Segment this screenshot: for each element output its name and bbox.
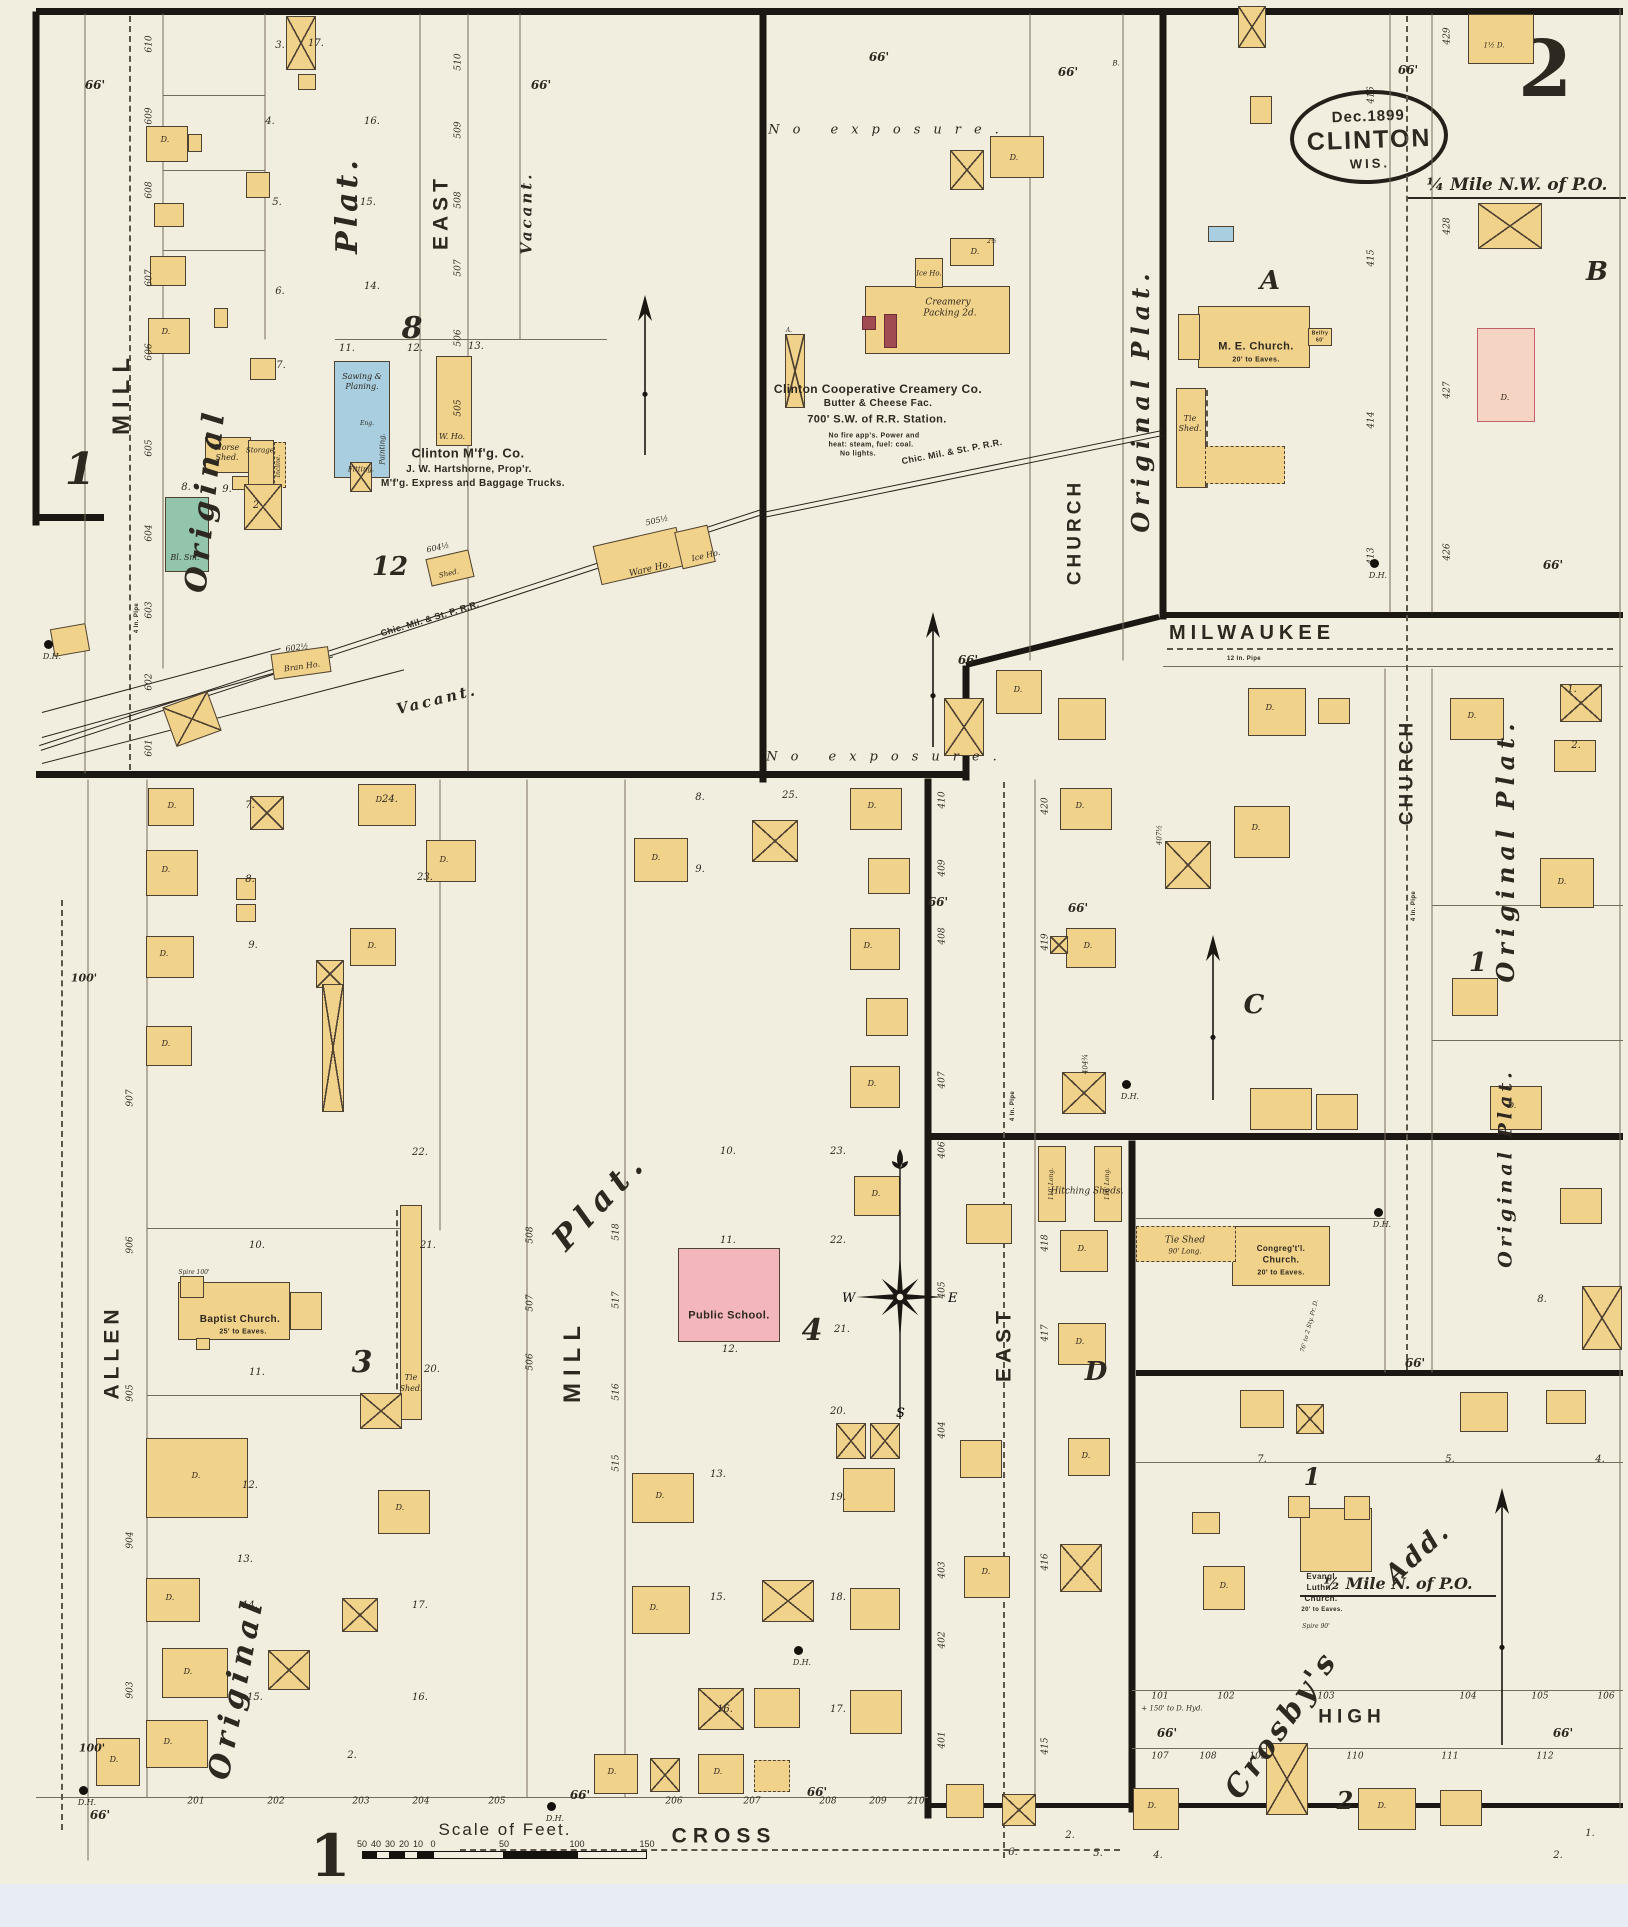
lot-number: 11. [249,1368,265,1378]
map-annotation: Public School. [688,1311,769,1322]
building [752,820,798,862]
map-annotation: Baptist Church. [200,1315,280,1325]
north-arrow-icon [1198,935,1228,1100]
house-number: 402 [939,1631,948,1648]
house-number: 410 [939,791,948,808]
house-number: 101 [1151,1693,1168,1702]
house-number: 414 [1368,411,1377,428]
svg-text:E: E [947,1291,958,1306]
building [1358,1788,1416,1830]
map-annotation: D. [166,1594,175,1602]
block-line [1132,1690,1623,1691]
house-number: 903 [127,1681,136,1698]
house-number: 407 [939,1071,948,1088]
map-annotation: D. [368,942,377,950]
building [1002,1794,1036,1826]
map-annotation: D. [168,802,177,810]
heavy-border-line [1163,612,1623,618]
map-annotation: 25' to Eaves. [219,1329,266,1336]
lot-number: 9. [695,865,705,875]
building [196,1338,210,1350]
scale-bar-tick: 40 [371,1839,381,1849]
building [1062,1072,1106,1114]
map-annotation: Bl. Sm. [170,554,199,562]
scale-bar-tick: 0 [430,1839,435,1849]
map-annotation: Ice Ho. [916,271,941,278]
house-number: 518 [613,1223,622,1240]
block-number: 2 [1337,1789,1354,1813]
map-annotation: 66' [570,1789,590,1801]
water-pipe-line [1167,648,1613,650]
house-number: 109 [1249,1753,1266,1762]
building [1250,1088,1312,1130]
map-annotation: 4 In. Pipe [1010,1091,1016,1121]
house-number: 408 [939,927,948,944]
house-number: 105 [1531,1693,1548,1702]
street-label: ALLEN [102,1305,123,1400]
house-number: 418 [1042,1234,1051,1251]
map-annotation: 20' to Eaves. [1232,357,1279,364]
water-pipe-line [61,900,63,1830]
building [850,928,900,970]
lot-number: 11. [720,1236,736,1246]
lot-number: 6. [275,287,285,297]
building [146,1720,208,1768]
lot-number: 9. [248,941,258,951]
lot-number: 14. [242,1601,258,1611]
building [154,203,184,227]
scale-bar-tick: 50 [499,1839,509,1849]
map-annotation: D. [656,1492,665,1500]
house-number: 415 [1368,249,1377,266]
block-number: 1 [1469,950,1487,976]
building [1460,1392,1508,1432]
scale-bar-tick: 150 [639,1839,654,1849]
building [1248,688,1306,736]
building [1344,1496,1370,1520]
lot-number: 6. [1008,1848,1018,1858]
building [866,998,908,1036]
lot-number: 2. [1553,1851,1563,1861]
lot-number: 17. [308,39,324,49]
house-number: 106 [1597,1693,1614,1702]
building [180,1276,204,1298]
map-annotation: Congreg't'l. [1257,1245,1306,1253]
map-annotation: 110' Long. [1049,1168,1055,1200]
scan-edge [0,1884,1628,1927]
lot-number: 2. [347,1751,357,1761]
building [150,256,186,286]
house-number: 906 [127,1236,136,1253]
map-annotation: Creamery [925,299,970,308]
map-annotation: Horse [215,444,239,452]
map-annotation: Belfry [1312,332,1329,337]
map-annotation: Sawing & [342,373,382,381]
lot-number: 16. [717,1705,733,1715]
map-annotation: W. Ho. [439,433,465,441]
house-number: 508 [527,1226,536,1243]
lot-number: 12. [407,344,423,354]
map-annotation: D. [1266,704,1275,712]
scale-bar-segment [433,1851,504,1859]
map-annotation: 12 In. Pipe [1227,656,1261,662]
north-arrow-icon [630,295,660,455]
heavy-border-line [36,8,1623,15]
map-annotation: No lights. [840,451,876,458]
map-annotation: D. [184,1668,193,1676]
map-annotation: D. [1252,824,1261,832]
building [868,858,910,894]
heavy-border-line [928,1133,1623,1140]
heavy-border-line [33,12,40,526]
building [1208,226,1234,242]
svg-text:S: S [896,1406,905,1421]
house-number: 208 [819,1798,836,1807]
plat-script-label: Plat. [546,1144,653,1256]
railroad-siding [42,669,404,764]
building [1192,1512,1220,1534]
block-line [1432,1040,1623,1041]
hydrant-label: D.H. [793,1659,811,1667]
building [754,1760,790,1792]
house-number: 607 [146,269,155,286]
street-label: CROSS [672,1826,777,1847]
lot-number: 12. [722,1345,738,1355]
map-annotation: 66' [90,1809,110,1821]
heavy-border-line [1129,1141,1136,1813]
building [678,1248,780,1342]
lot-number: 8. [245,875,255,885]
map-annotation: 110' Long. [1105,1168,1111,1200]
block-line [85,14,86,774]
lot-number: 4. [1595,1455,1605,1465]
block-line [1432,669,1433,1373]
building [1178,314,1200,360]
house-number: 610 [146,35,155,52]
map-annotation: 66' [1553,1727,1573,1739]
lot-number: 8. [181,483,191,493]
fire-hydrant-marker [794,1646,803,1655]
building [1540,858,1594,908]
map-annotation: Spire 100' [178,1270,209,1276]
map-annotation: D. [868,1080,877,1088]
fire-hydrant-marker [547,1802,556,1811]
map-annotation: 66' [869,51,889,63]
heavy-border-line [36,514,104,521]
heavy-border-line [1160,12,1167,620]
hydrant-label: D.H. [1369,572,1387,580]
block-number: C [1244,992,1265,1018]
building [236,904,256,922]
building [1058,698,1106,740]
map-annotation: Clinton Cooperative Creamery Co. [774,383,982,395]
map-annotation: Shed. [399,1385,422,1393]
map-annotation: 505½ [645,515,669,528]
house-number: 602 [146,673,155,690]
building [1234,806,1290,858]
map-annotation: D. [162,1040,171,1048]
map-annotation: D. [1501,394,1510,402]
building [244,484,282,530]
map-annotation: D. [1468,712,1477,720]
house-number: 206 [665,1798,682,1807]
block-number: 1 [65,448,96,492]
map-annotation: 20' to Eaves. [1257,1270,1304,1277]
building [1452,978,1498,1016]
lot-number: 1. [1585,1829,1595,1839]
map-annotation: Shed. [1178,425,1201,433]
map-annotation: Church. [1263,1256,1300,1265]
lot-number: 16. [412,1693,428,1703]
building [146,850,198,896]
map-annotation: Tie [1184,415,1197,423]
map-annotation: 66' [1157,1727,1177,1739]
building [246,172,270,198]
map-annotation: 66' [531,79,551,91]
map-annotation: D. [110,1756,119,1764]
map-annotation: J. W. Hartshorne, Prop'r. [406,465,532,475]
house-number: 409 [939,859,948,876]
map-annotation: D. [1148,1802,1157,1810]
house-number: 429 [1444,27,1453,44]
house-number: 209 [869,1798,886,1807]
house-number: 509 [455,121,464,138]
sanborn-map-sheet: Dec.1899 CLINTON WIS. 2 1 ¼ Mile N.W. of… [0,0,1628,1927]
lot-number: 7. [245,801,255,811]
building [850,1690,902,1734]
building [1288,1496,1310,1518]
block-line [335,339,607,340]
lot-number: 18. [830,1593,846,1603]
block-line [36,1797,928,1798]
map-annotation: 604½ [426,542,450,555]
map-annotation: + 150' to D. Hyd. [1141,1706,1202,1713]
house-number: 207 [743,1798,760,1807]
po-distance-note-top: ¼ Mile N.W. of P.O. [1408,175,1626,199]
lot-number: 23. [417,873,433,883]
lot-number: 7. [1257,1455,1267,1465]
building [946,1784,984,1818]
lot-number: 2 [253,501,259,511]
block-line [1390,14,1391,613]
building [862,316,876,330]
house-number: 103 [1317,1693,1334,1702]
scale-bar-segment [390,1851,404,1859]
street-label: CHURCH [1398,719,1417,825]
house-number: 111 [1441,1753,1458,1762]
water-pipe-line [396,1210,398,1420]
map-annotation: 90' Long. [1168,1249,1201,1256]
building [1205,446,1285,484]
street-label: MILWAUKEE [1169,623,1335,643]
plat-script-label: Original Plat. [1494,717,1518,982]
map-annotation: 66' [1058,66,1078,78]
map-annotation: 4 In. Pipe [134,603,140,633]
block-line [1620,9,1621,1809]
house-number: 904 [127,1531,136,1548]
map-annotation: Clinton M'f'g. Co. [411,447,524,460]
lot-number: 17. [830,1705,846,1715]
house-number: 609 [146,107,155,124]
block-line [1136,1462,1623,1463]
building [1560,1188,1602,1224]
block-line [163,170,265,171]
map-annotation: 700' S.W. of R.R. Station. [807,415,947,426]
house-number: 420 [1042,797,1051,814]
lot-number: 22. [412,1148,428,1158]
building [214,308,228,328]
house-number: 416 [1368,86,1377,103]
map-annotation: 4 In. Pipe [1411,891,1417,921]
lot-number: 10. [249,1241,265,1251]
house-number: 608 [146,181,155,198]
heavy-border-line [36,771,968,778]
hydrant-label: D.H. [78,1799,96,1807]
map-annotation: Shed. [215,454,238,462]
map-annotation: D. [160,950,169,958]
building [146,126,188,162]
scale-bar-segment [504,1851,577,1859]
house-number: 905 [127,1384,136,1401]
compass-rose-icon: WES [830,1147,970,1447]
map-annotation: D. [971,248,980,256]
map-annotation: heat: steam, fuel: coal. [828,442,913,449]
scale-bar-segment [376,1851,390,1859]
block-line [420,14,421,471]
plat-script-label: Plat. [333,156,363,254]
house-number: 606 [146,343,155,360]
block-line [1132,1748,1623,1749]
map-annotation: Spire 90' [1302,1624,1329,1630]
building [966,1204,1012,1244]
street-label: HIGH [1318,1708,1386,1727]
block-line [1123,14,1124,661]
house-number: 605 [146,439,155,456]
house-number: 506 [527,1353,536,1370]
fire-hydrant-marker [1370,559,1379,568]
house-number: 506 [455,329,464,346]
map-annotation: D. [162,866,171,874]
map-annotation: D. [1558,878,1567,886]
building [754,1688,800,1728]
house-number: 515 [613,1454,622,1471]
building [1296,1404,1324,1434]
lot-number: 5. [1445,1455,1455,1465]
building [850,1588,900,1630]
map-annotation: D. [1076,802,1085,810]
map-annotation: B. [1112,61,1119,68]
map-annotation: D. [868,802,877,810]
house-number: 426 [1444,543,1453,560]
lot-number: 9. [222,485,232,495]
map-annotation: No exposure. [768,124,1012,137]
map-annotation: Tie Shed [1165,1237,1205,1246]
house-number: 517 [613,1291,622,1308]
map-annotation: 60' [1316,339,1324,344]
map-annotation: Fitting. [348,467,374,474]
building [426,840,476,882]
block-line [1432,14,1433,613]
map-annotation: D. [714,1768,723,1776]
map-annotation: No fire app's. Power and [828,433,919,440]
lot-number: 13. [710,1470,726,1480]
map-annotation: 2½ [987,239,997,245]
building [1165,841,1211,889]
house-number: 203 [352,1798,369,1807]
block-number: B [1586,259,1608,285]
house-number: 403 [939,1561,948,1578]
hydrant-label: D.H. [1373,1221,1391,1229]
building [785,334,805,408]
heavy-border-line [760,12,767,783]
block-line [527,780,528,1798]
lot-number: 15. [247,1693,263,1703]
map-annotation: D. [982,1568,991,1576]
block-number: D [1085,1359,1108,1385]
house-number: 419 [1042,933,1051,950]
lot-number: 13. [237,1555,253,1565]
plat-script-label: Vacant. [395,683,479,718]
lot-number: 3. [275,41,285,51]
block-line [1385,669,1386,1373]
map-annotation: 66' [1543,559,1563,571]
map-annotation: 66' [1068,902,1088,914]
plat-script-label: Vacant. [520,172,535,255]
house-number: 108 [1199,1753,1216,1762]
house-number: 104 [1459,1693,1476,1702]
building [964,1556,1010,1598]
building [1468,14,1534,64]
map-annotation: D. [1076,1338,1085,1346]
building [250,796,284,830]
map-annotation: 100' [79,1743,105,1754]
building [250,358,276,380]
building [1240,1390,1284,1428]
scale-bar-segment [577,1851,647,1859]
map-annotation: D. [1084,942,1093,950]
house-number: 102 [1217,1693,1234,1702]
house-number: 112 [1536,1753,1553,1762]
map-annotation: Luthn. [1307,1584,1334,1592]
lot-number: 21. [420,1241,436,1251]
block-line [1136,1218,1385,1219]
house-number: 201 [187,1798,204,1807]
map-annotation: D. [1078,1245,1087,1253]
scale-bar-tick: 10 [413,1839,423,1849]
building [1250,96,1272,124]
map-annotation: D. [864,942,873,950]
lot-number: 5. [272,198,282,208]
block-number: 8 [402,314,423,344]
stamp-city: CLINTON [1294,123,1445,157]
building [1316,1094,1358,1130]
map-annotation: Butter & Cheese Fac. [824,399,933,409]
building [290,1292,322,1330]
building [268,1650,310,1690]
map-annotation: D. [161,136,170,144]
map-annotation: D. [396,1504,405,1512]
map-annotation: D. [650,1604,659,1612]
house-number: 507 [455,259,464,276]
map-annotation: Tie [405,1374,418,1382]
hydrant-label: D.H. [43,653,61,661]
lot-number: 7. [276,361,286,371]
block-number: 3 [352,1348,373,1378]
plat-script-label: Original Plat. [1129,267,1153,532]
map-annotation: D. [1220,1582,1229,1590]
house-number: 508 [455,191,464,208]
lot-number: 15. [360,198,376,208]
